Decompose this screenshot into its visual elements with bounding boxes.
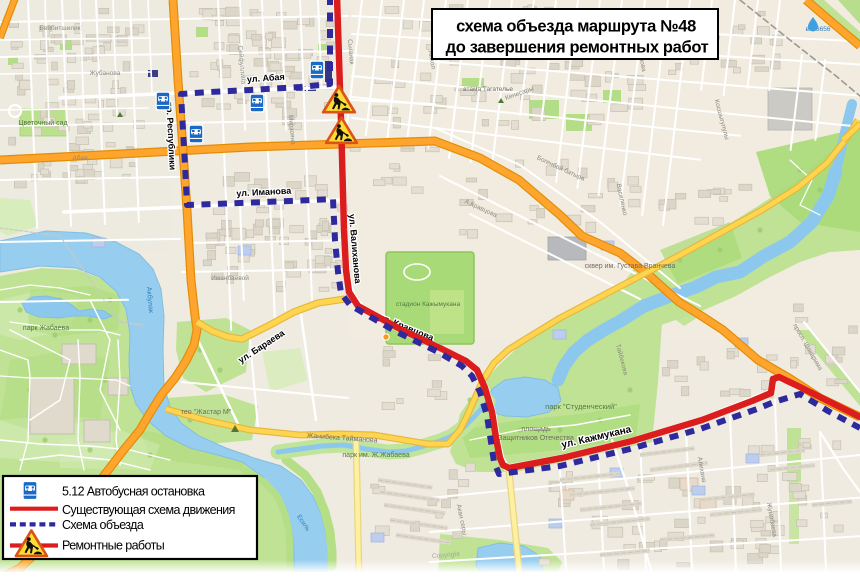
svg-text:площадь: площадь [521,426,551,433]
svg-text:схема объезда маршрута №48: схема объезда маршрута №48 [456,18,696,36]
svg-text:стадион Кажымукана: стадион Кажымукана [396,301,461,308]
svg-text:Абая: Абая [72,154,88,162]
svg-text:до завершения ремонтных работ: до завершения ремонтных работ [446,39,709,57]
svg-text:парк "Студенческий": парк "Студенческий" [545,402,617,411]
svg-text:5.12 Автобусная остановка: 5.12 Автобусная остановка [62,485,205,499]
svg-text:сквер им. Густава Вранчева: сквер им. Густава Вранчева [585,263,676,270]
svg-text:Схема объезда: Схема объезда [62,518,144,532]
svg-text:Цветочный сад: Цветочный сад [18,119,67,127]
svg-text:Иманбаевой: Иманбаевой [211,274,249,282]
svg-text:Ремонтные работы: Ремонтные работы [62,539,165,553]
svg-text:Существующая схема движения: Существующая схема движения [62,503,235,517]
svg-text:Бейбитшилик: Бейбитшилик [40,24,81,32]
svg-text:тео "Жастар М": тео "Жастар М" [181,409,232,416]
svg-text:парк Жабаева: парк Жабаева [23,324,69,332]
svg-text:парк им. Ж.Жабаева: парк им. Ж.Жабаева [342,451,409,459]
svg-text:Жубанова: Жубанова [90,69,121,77]
svg-text:атама Тагателье: атама Тагателье [463,86,513,93]
svg-text:Защитников Отечества: Защитников Отечества [498,435,574,442]
